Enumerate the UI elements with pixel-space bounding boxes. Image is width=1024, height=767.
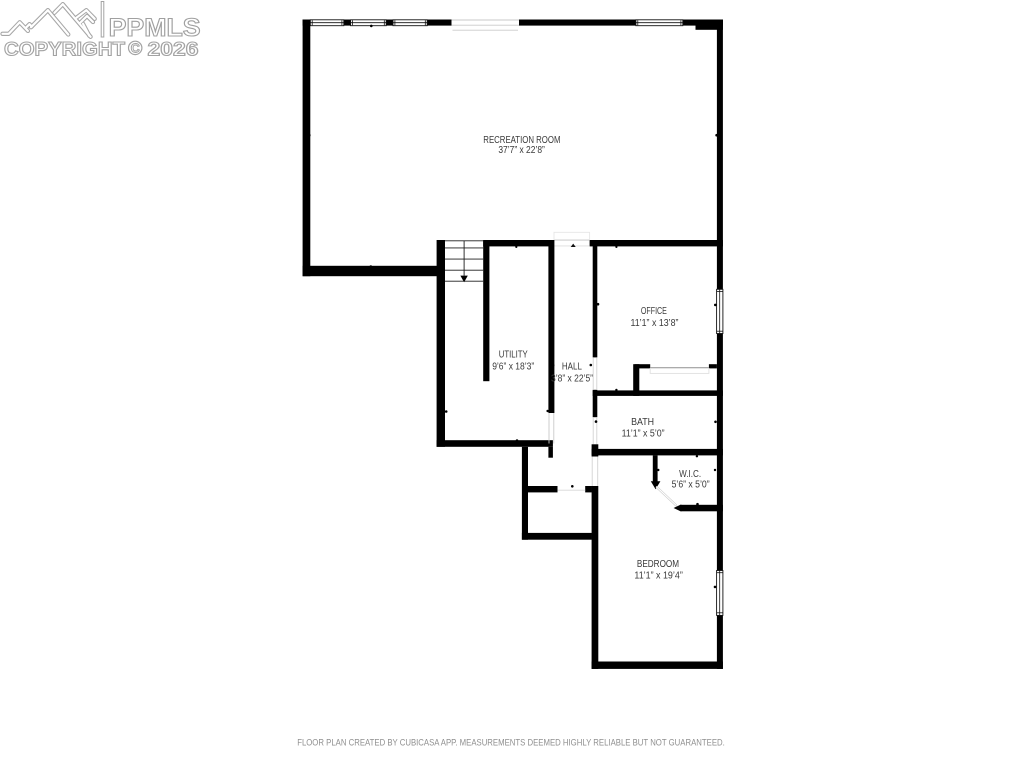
svg-text:C: C xyxy=(131,41,141,56)
svg-text:37’7” x 22’8”: 37’7” x 22’8” xyxy=(498,145,545,156)
svg-text:9’6” x 18’3”: 9’6” x 18’3” xyxy=(492,362,534,373)
svg-text:FLOOR PLAN CREATED BY CUBICASA: FLOOR PLAN CREATED BY CUBICASA APP. MEAS… xyxy=(297,738,725,748)
svg-text:11’1” x 19’4”: 11’1” x 19’4” xyxy=(634,570,682,581)
svg-text:11’1” x 5’0”: 11’1” x 5’0” xyxy=(622,429,665,440)
svg-text:OFFICE: OFFICE xyxy=(641,306,667,317)
svg-text:W.I.C.: W.I.C. xyxy=(679,469,701,480)
svg-text:11’1” x 13’8”: 11’1” x 13’8” xyxy=(631,318,679,329)
svg-text:3’8” x 22’5”: 3’8” x 22’5” xyxy=(551,374,593,385)
svg-text:RECREATION ROOM: RECREATION ROOM xyxy=(483,135,560,146)
svg-text:BEDROOM: BEDROOM xyxy=(637,559,679,570)
svg-text:BATH: BATH xyxy=(631,417,654,428)
svg-text:PPMLS: PPMLS xyxy=(109,14,201,42)
svg-text:COPYRIGHT: COPYRIGHT xyxy=(4,39,125,60)
svg-text:UTILITY: UTILITY xyxy=(499,350,528,361)
svg-text:HALL: HALL xyxy=(562,362,582,373)
svg-text:5’6” x 5’0”: 5’6” x 5’0” xyxy=(672,480,710,491)
svg-text:2026: 2026 xyxy=(148,39,199,60)
